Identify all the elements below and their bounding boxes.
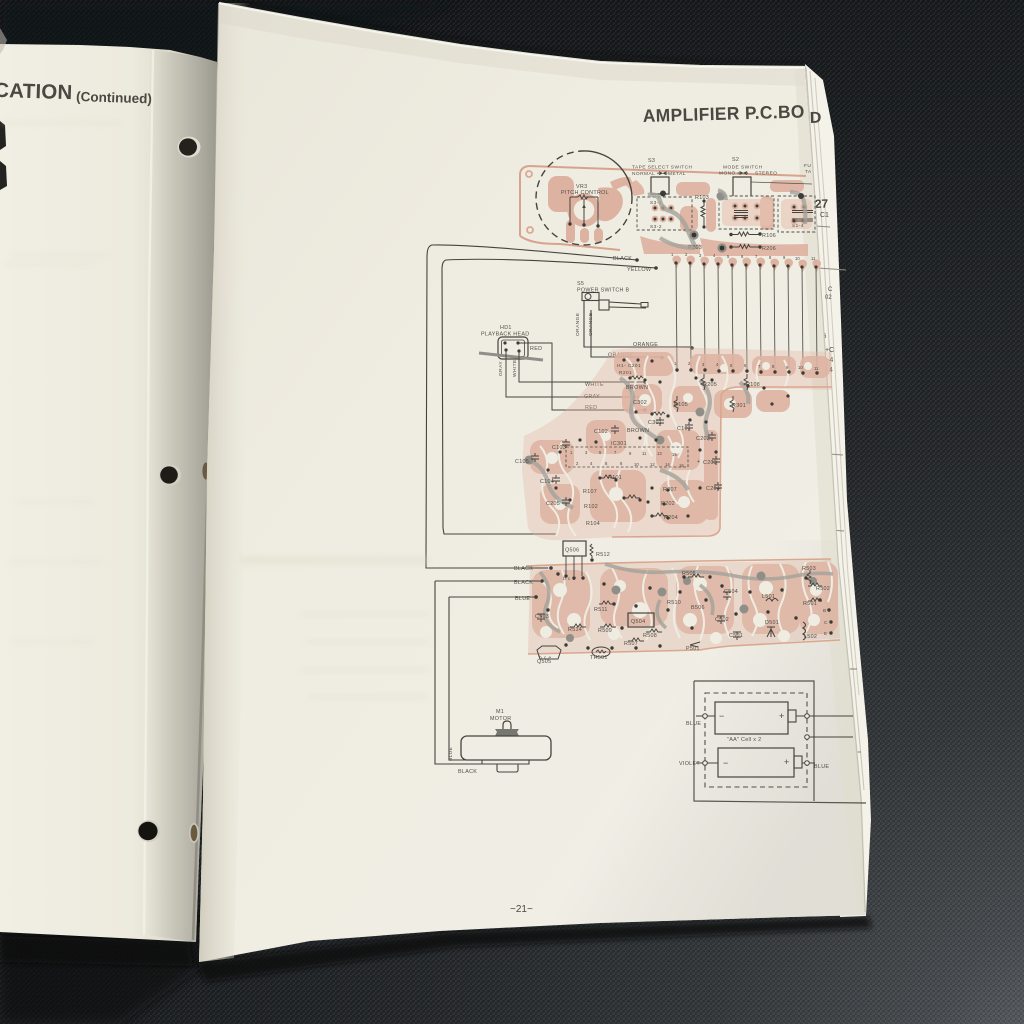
svg-text:FU: FU (804, 163, 811, 169)
svg-text:ORANGE: ORANGE (575, 313, 581, 337)
svg-text:R512: R512 (596, 552, 610, 558)
svg-text:27: 27 (815, 197, 829, 211)
svg-text:14: 14 (665, 462, 670, 467)
svg-text:15: 15 (672, 452, 677, 457)
svg-text:+: + (784, 757, 789, 767)
svg-text:BLUE: BLUE (686, 721, 701, 727)
svg-text:RED: RED (530, 346, 542, 352)
svg-text:WHITE: WHITE (512, 359, 518, 377)
svg-text:−: − (719, 711, 724, 721)
svg-text:PITCH CONTROL: PITCH CONTROL (561, 190, 609, 196)
svg-text:"AA" Cell x 2: "AA" Cell x 2 (727, 737, 761, 743)
svg-text:Q504: Q504 (631, 619, 645, 625)
svg-text:−: − (723, 758, 728, 768)
svg-text:R501: R501 (803, 601, 817, 607)
svg-text:11: 11 (814, 366, 819, 371)
svg-text:C205: C205 (546, 501, 560, 507)
svg-text:R106: R106 (762, 233, 776, 239)
svg-text:S3-2: S3-2 (650, 224, 662, 230)
svg-text:BLACK: BLACK (458, 769, 477, 775)
svg-text:D501: D501 (765, 620, 779, 626)
svg-text:BLUE: BLUE (448, 747, 454, 761)
svg-text:13: 13 (657, 451, 662, 456)
svg-text:C302: C302 (633, 400, 647, 406)
svg-text:11: 11 (811, 256, 816, 261)
svg-text:10: 10 (798, 365, 803, 370)
svg-text:MODE SWITCH: MODE SWITCH (723, 165, 763, 171)
svg-text:b c e: b c e (539, 655, 552, 661)
svg-text:BROWN: BROWN (626, 385, 648, 391)
svg-text:GRAY: GRAY (498, 361, 504, 376)
svg-text:12: 12 (650, 462, 655, 467)
svg-text:C104: C104 (540, 479, 554, 485)
svg-text:BLUE: BLUE (814, 764, 829, 770)
svg-text:R102: R102 (584, 504, 598, 510)
svg-text:B506: B506 (691, 605, 705, 611)
svg-text:C102: C102 (594, 429, 608, 435)
svg-text:R514: R514 (568, 627, 582, 633)
svg-text:S5: S5 (577, 281, 584, 287)
svg-text:R509: R509 (598, 628, 612, 634)
svg-text:10: 10 (795, 256, 800, 261)
svg-text:−21−: −21− (510, 904, 533, 915)
svg-text:S3: S3 (648, 158, 655, 164)
svg-text:HD1: HD1 (500, 325, 512, 331)
svg-text:H1- C201: H1- C201 (617, 363, 641, 369)
svg-text:BLACK: BLACK (514, 566, 533, 572)
svg-text:R103: R103 (695, 195, 709, 201)
svg-text:C1: C1 (820, 212, 829, 219)
svg-text:+: + (697, 459, 700, 465)
svg-text:C202: C202 (696, 436, 710, 442)
svg-text:R104: R104 (586, 521, 600, 527)
svg-text:MONO: MONO (719, 171, 736, 177)
svg-text:16: 16 (679, 463, 684, 468)
svg-text:VIOLET: VIOLET (679, 761, 700, 767)
svg-text:R207: R207 (663, 487, 677, 493)
svg-text:C: C (824, 620, 828, 626)
svg-text:BROWN: BROWN (627, 428, 649, 434)
svg-text:R510: R510 (667, 600, 681, 606)
svg-text:TH501: TH501 (590, 655, 608, 661)
svg-text:METAL: METAL (668, 171, 686, 177)
svg-text:IC301: IC301 (611, 441, 627, 447)
svg-text:R507: R507 (624, 641, 638, 647)
svg-text:M1: M1 (496, 709, 504, 715)
svg-text:S2: S2 (732, 157, 739, 163)
svg-text:NORMAL: NORMAL (632, 171, 655, 177)
svg-text:11: 11 (642, 451, 647, 456)
svg-text:R511: R511 (594, 607, 608, 613)
svg-text:C501: C501 (729, 633, 743, 639)
svg-text:+: + (779, 711, 784, 721)
svg-text:R502: R502 (816, 586, 830, 592)
svg-text:R201: R201 (619, 370, 632, 376)
svg-text:C203: C203 (703, 460, 717, 466)
svg-text:B: B (823, 608, 827, 614)
svg-text:R206: R206 (762, 246, 776, 252)
svg-text:R508: R508 (643, 633, 657, 639)
svg-text:C: C (828, 287, 833, 293)
svg-text:D: D (810, 110, 822, 127)
svg-text:R107: R107 (583, 489, 597, 495)
svg-text:Q506: Q506 (565, 548, 579, 554)
svg-text:R503: R503 (802, 566, 816, 572)
svg-text:10: 10 (634, 462, 639, 467)
svg-text:(Continued): (Continued) (76, 89, 152, 106)
svg-text:C103: C103 (552, 445, 566, 451)
svg-text:CATION: CATION (0, 79, 73, 104)
svg-text:C502: C502 (715, 617, 729, 623)
svg-text:TAPE SELECT SWITCH: TAPE SELECT SWITCH (632, 165, 693, 171)
svg-text:E: E (824, 631, 828, 637)
svg-text:02: 02 (825, 295, 832, 301)
svg-text:STEREO: STEREO (755, 171, 777, 177)
svg-text:TA: TA (805, 169, 812, 175)
svg-text:C105: C105 (515, 459, 529, 465)
